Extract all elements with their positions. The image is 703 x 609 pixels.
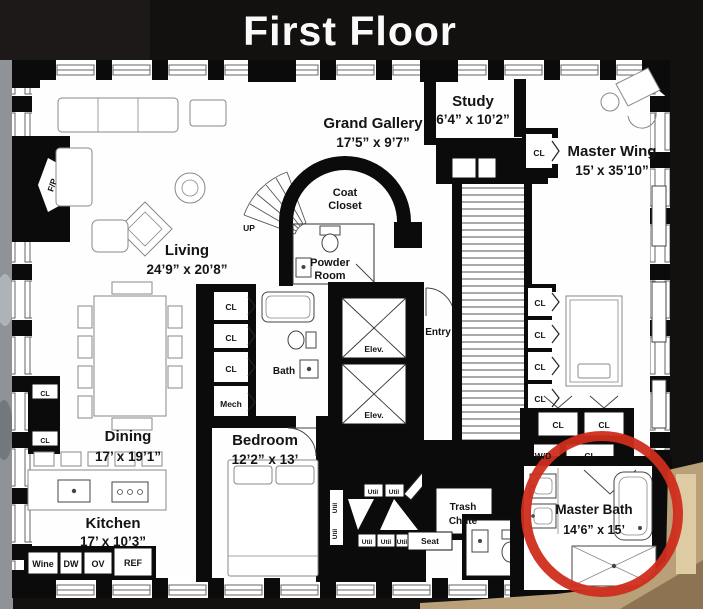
toilet <box>322 234 338 252</box>
elevator-label: Elev. <box>364 410 383 420</box>
room-living-dims: 24’9” x 20’8” <box>146 262 227 277</box>
background-photo-strip <box>0 60 13 609</box>
svg-text:Room: Room <box>314 270 345 282</box>
utility-label: Util <box>362 539 373 546</box>
dining-furniture <box>78 282 182 430</box>
room-living: Living <box>165 242 209 259</box>
room-powder-room: Powder <box>310 257 350 269</box>
utility-label: Util <box>389 489 400 496</box>
room-bath: Bath <box>273 366 295 377</box>
elevator-core <box>328 282 424 478</box>
refrigerator-label: REF <box>124 558 143 568</box>
room-grand-gallery-dims: 17’5” x 9’7” <box>336 135 410 150</box>
radiator <box>652 282 666 342</box>
sofa <box>58 98 178 132</box>
room-trash-chute: Trash <box>450 502 477 513</box>
room-grand-gallery: Grand Gallery <box>323 115 423 132</box>
pillow <box>234 466 272 484</box>
closet-label: CL <box>533 148 544 158</box>
stool <box>601 93 619 111</box>
room-bedroom: Bedroom <box>232 432 298 449</box>
room-bedroom-dims: 12’2” x 13’ <box>232 452 299 467</box>
background-buildings <box>0 0 150 60</box>
room-kitchen: Kitchen <box>85 515 140 532</box>
room-kitchen-dims: 17’ x 10’3” <box>80 534 146 549</box>
closet-label: CL <box>225 364 236 374</box>
radiator <box>652 186 666 246</box>
room-master-wing-dims: 15’ x 35’10” <box>575 163 649 178</box>
closet-label: CL <box>534 394 545 404</box>
washer-dryer-label: W/D <box>535 451 552 461</box>
closet-label: CL <box>225 302 236 312</box>
seat-label: Seat <box>421 536 439 546</box>
room-coat-closet: Coat <box>333 187 358 199</box>
dishwasher-label: DW <box>64 559 79 569</box>
room-study: Study <box>452 93 494 110</box>
utility-label: Util <box>381 539 392 546</box>
closet-label: CL <box>552 420 563 430</box>
room-entry: Entry <box>425 327 451 338</box>
elevator-label: Elev. <box>364 344 383 354</box>
toilet-tank <box>306 332 316 348</box>
closet-label: CL <box>534 330 545 340</box>
closet-label: CL <box>40 438 50 445</box>
mech-label: Mech <box>220 399 242 409</box>
utility-closets <box>326 466 435 582</box>
chair <box>92 220 128 252</box>
closet-label: CL <box>225 333 236 343</box>
closet-label: CL <box>40 391 50 398</box>
oven-label: OV <box>91 559 104 569</box>
closet-label: CL <box>534 362 545 372</box>
ottoman <box>190 100 226 126</box>
utility-label: Util <box>368 489 379 496</box>
room-master-bath-dims: 14’6” x 15’ <box>563 523 625 537</box>
round-chair <box>175 173 205 203</box>
closet-label: CL <box>534 298 545 308</box>
page-title: First Floor <box>243 8 457 54</box>
utility-label: Util <box>397 539 408 546</box>
radiator <box>652 380 666 428</box>
master-bed <box>566 296 622 386</box>
up-label: UP <box>243 223 255 233</box>
staircase <box>462 184 524 440</box>
pillow <box>578 364 610 378</box>
armchair <box>56 148 92 206</box>
svg-text:Closet: Closet <box>328 200 362 212</box>
closet-label: CL <box>598 420 609 430</box>
room-dining-dims: 17’ x 19’1” <box>95 449 161 464</box>
utility-label: Util <box>332 529 339 540</box>
floorplan-svg: First Floor Grand Gallery 17’5” x 9’7” S… <box>0 0 703 609</box>
room-master-wing: Master Wing <box>567 143 656 160</box>
wine-label: Wine <box>32 559 53 569</box>
bedroom-bed <box>228 460 318 576</box>
closet-label: CL <box>584 451 595 461</box>
floorplan-screenshot: First Floor Grand Gallery 17’5” x 9’7” S… <box>0 0 703 609</box>
svg-text:Chute: Chute <box>449 516 478 527</box>
utility-label: Util <box>332 503 339 514</box>
room-study-dims: 6’4” x 10’2” <box>436 112 510 127</box>
room-dining: Dining <box>105 428 152 445</box>
toilet <box>288 331 304 349</box>
room-master-bath: Master Bath <box>555 502 632 517</box>
dining-table <box>94 296 166 416</box>
pillow <box>276 466 314 484</box>
